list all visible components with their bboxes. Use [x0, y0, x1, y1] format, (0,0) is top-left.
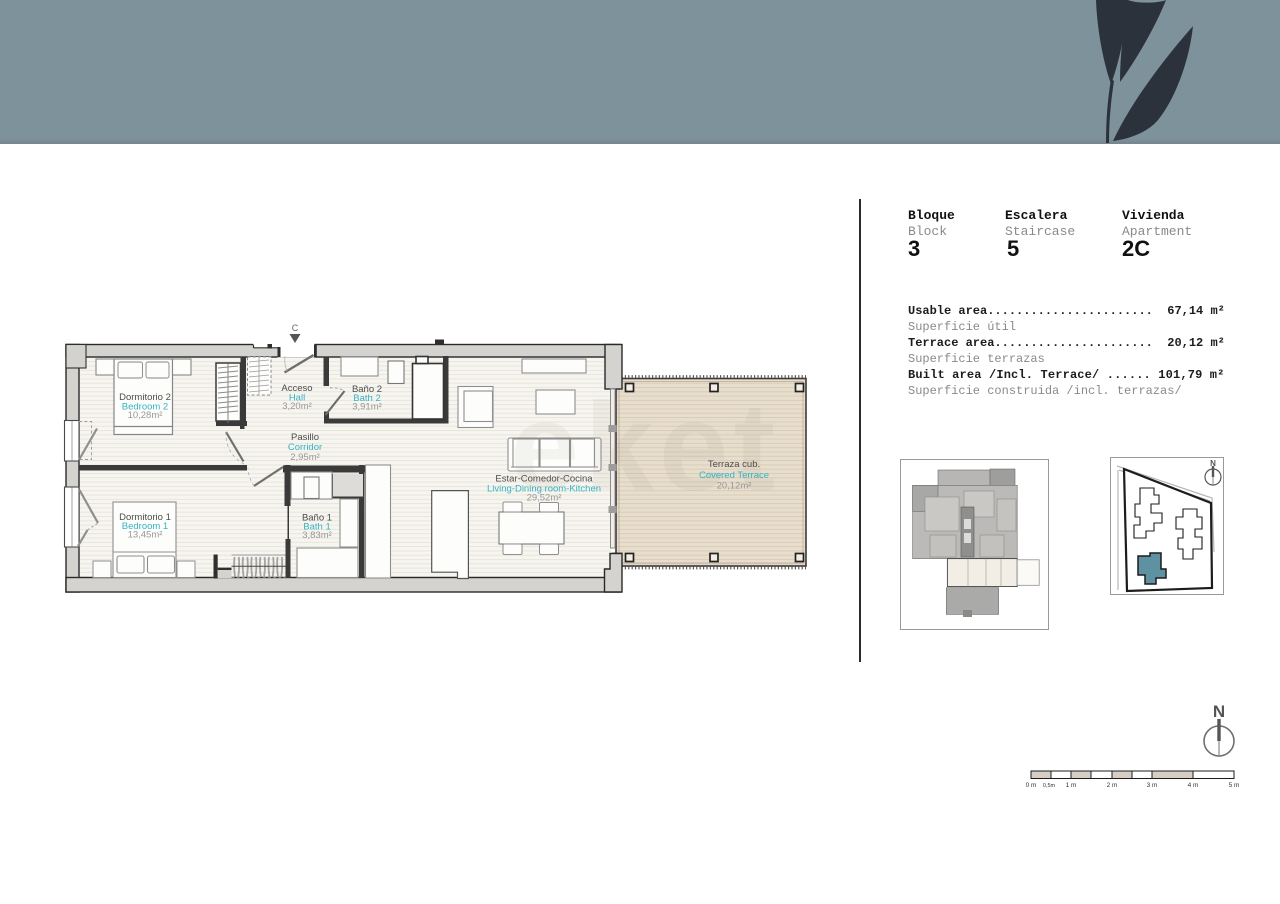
svg-text:3 m: 3 m	[1147, 782, 1158, 789]
svg-text:29,52m²: 29,52m²	[527, 493, 562, 504]
svg-text:0,5m: 0,5m	[1043, 783, 1056, 789]
svg-text:N: N	[1213, 702, 1225, 721]
svg-text:3,91m²: 3,91m²	[352, 402, 382, 413]
svg-text:13,45m²: 13,45m²	[128, 530, 163, 541]
svg-text:20,12m²: 20,12m²	[717, 481, 752, 492]
svg-text:Terraza cub.: Terraza cub.	[708, 459, 760, 470]
svg-text:C: C	[292, 323, 299, 333]
svg-text:N: N	[1210, 459, 1216, 468]
svg-text:4 m: 4 m	[1188, 782, 1199, 789]
svg-text:2,95m²: 2,95m²	[290, 452, 320, 463]
svg-text:3,20m²: 3,20m²	[282, 401, 312, 412]
svg-text:2 m: 2 m	[1107, 782, 1118, 789]
svg-text:1 m: 1 m	[1066, 782, 1077, 789]
svg-text:5 m: 5 m	[1229, 782, 1240, 789]
svg-text:0 m: 0 m	[1026, 782, 1037, 789]
svg-text:3,83m²: 3,83m²	[302, 530, 332, 541]
svg-text:Covered Terrace: Covered Terrace	[699, 470, 769, 481]
svg-text:10,28m²: 10,28m²	[128, 410, 163, 421]
